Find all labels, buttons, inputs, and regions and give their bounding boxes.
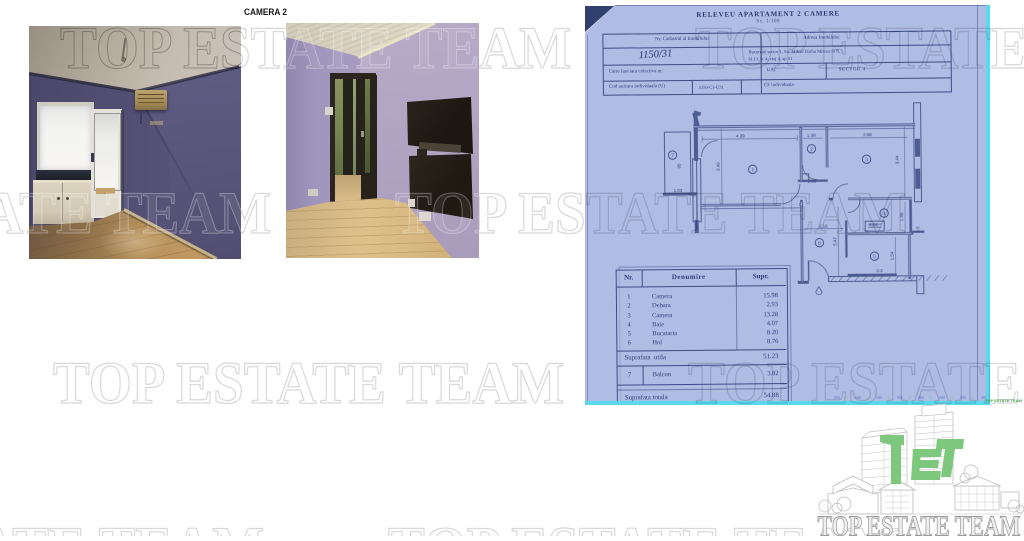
svg-text:TOP ESTATE TEAM: TOP ESTATE TEAM [818, 512, 1021, 537]
